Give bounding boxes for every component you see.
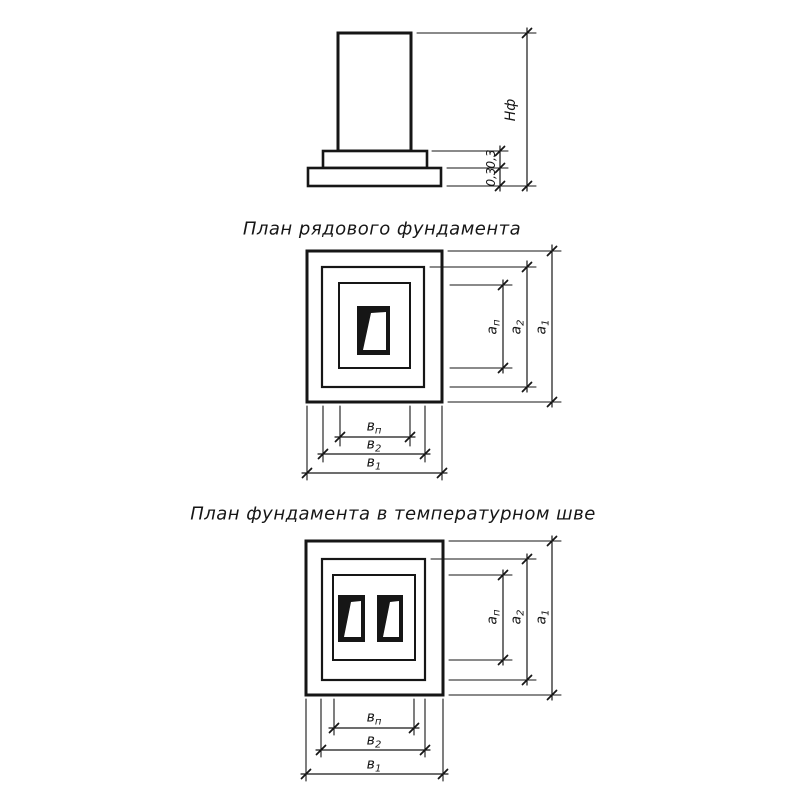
plan-ordinary-view bbox=[302, 245, 561, 480]
elevation-view bbox=[308, 28, 536, 191]
plan-expansion-joint-title: План фундамента в температурном шве bbox=[190, 504, 596, 525]
dim-base: а bbox=[485, 616, 501, 625]
dim-sub: 1 bbox=[375, 462, 381, 473]
dim-sub: п bbox=[375, 426, 382, 437]
dim-sub: 2 bbox=[375, 444, 381, 455]
plan2-stakan-opening-right bbox=[377, 595, 403, 642]
dim-base: а bbox=[534, 326, 550, 335]
dim-label-a-inner: ап bbox=[486, 609, 503, 624]
dim-sub: п bbox=[492, 319, 503, 326]
dim-sub: п bbox=[375, 717, 382, 728]
dim-base: а bbox=[485, 326, 501, 335]
dim-sub: п bbox=[492, 609, 503, 616]
dim-label-b-inner: вп bbox=[367, 420, 382, 437]
dim-sub: 2 bbox=[516, 320, 527, 326]
dim-sub: 2 bbox=[516, 610, 527, 616]
dim-label-b-inner: вп bbox=[367, 711, 382, 728]
dim-label-a-mid: а2 bbox=[510, 320, 527, 335]
plan-expansion-joint-view bbox=[301, 536, 561, 781]
dim-label-b-mid: в2 bbox=[367, 734, 382, 751]
dim-base: а bbox=[509, 326, 525, 335]
dim-label-a-inner: ап bbox=[486, 319, 503, 334]
dim-base: а bbox=[534, 616, 550, 625]
dim-label-foundation-height: Нф bbox=[504, 99, 518, 122]
dim-label-a-outer: а1 bbox=[535, 610, 552, 625]
drawing-linework bbox=[0, 0, 800, 800]
dim-label-b-outer: в1 bbox=[367, 758, 382, 775]
dim-label-b-outer: в1 bbox=[367, 456, 382, 473]
foundation-slab bbox=[308, 168, 441, 186]
plan2-stakan-opening-left bbox=[338, 595, 365, 642]
dim-label-step-upper: 0,3 bbox=[485, 149, 497, 168]
dim-sub: 1 bbox=[375, 764, 381, 775]
plan1-stakan-opening bbox=[357, 306, 390, 355]
dim-label-step-lower: 0,3 bbox=[485, 167, 497, 186]
column-outline bbox=[338, 33, 411, 151]
foundation-step-upper bbox=[323, 151, 427, 168]
dim-base: а bbox=[509, 616, 525, 625]
dim-label-a-outer: а1 bbox=[535, 320, 552, 335]
dim-sub: 1 bbox=[541, 610, 552, 616]
dim-label-b-mid: в2 bbox=[367, 438, 382, 455]
drawing-sheet: Нф 0,3 0,3 План рядового фундамента ап а… bbox=[0, 0, 800, 800]
plan2-slab-outline bbox=[306, 541, 443, 695]
dim-label-a-mid: а2 bbox=[510, 610, 527, 625]
plan-ordinary-title: План рядового фундамента bbox=[243, 219, 521, 240]
dim-sub: 1 bbox=[541, 320, 552, 326]
dim-sub: 2 bbox=[375, 740, 381, 751]
